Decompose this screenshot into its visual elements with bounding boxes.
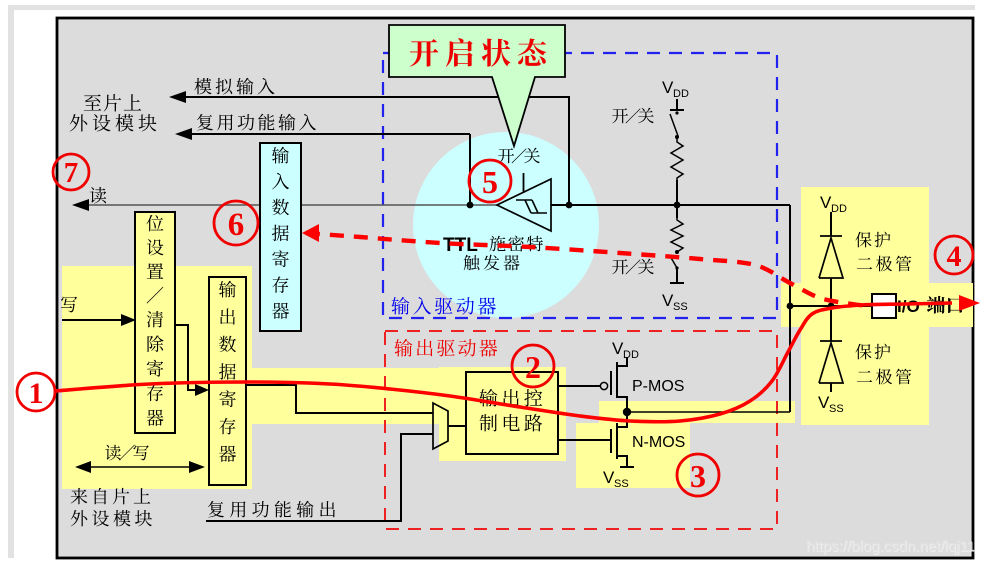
svg-text:https://blog.csdn.net/lqj11: https://blog.csdn.net/lqj11 xyxy=(806,538,975,555)
svg-text:2: 2 xyxy=(525,349,541,385)
svg-text:DD: DD xyxy=(673,88,689,100)
svg-text:SS: SS xyxy=(614,478,629,490)
svg-text:DD: DD xyxy=(623,349,639,361)
svg-text:I/O: I/O xyxy=(897,297,920,316)
svg-text:6: 6 xyxy=(228,207,245,243)
svg-text:3: 3 xyxy=(690,458,706,494)
svg-text:N-MOS: N-MOS xyxy=(632,434,685,451)
svg-text:4: 4 xyxy=(947,240,962,273)
svg-text:P-MOS: P-MOS xyxy=(632,378,684,395)
svg-text:1: 1 xyxy=(29,377,44,410)
svg-text:SS: SS xyxy=(673,301,688,313)
svg-text:5: 5 xyxy=(482,164,498,200)
svg-text:DD: DD xyxy=(831,203,847,215)
svg-text:7: 7 xyxy=(64,157,79,189)
svg-text:SS: SS xyxy=(829,403,844,415)
